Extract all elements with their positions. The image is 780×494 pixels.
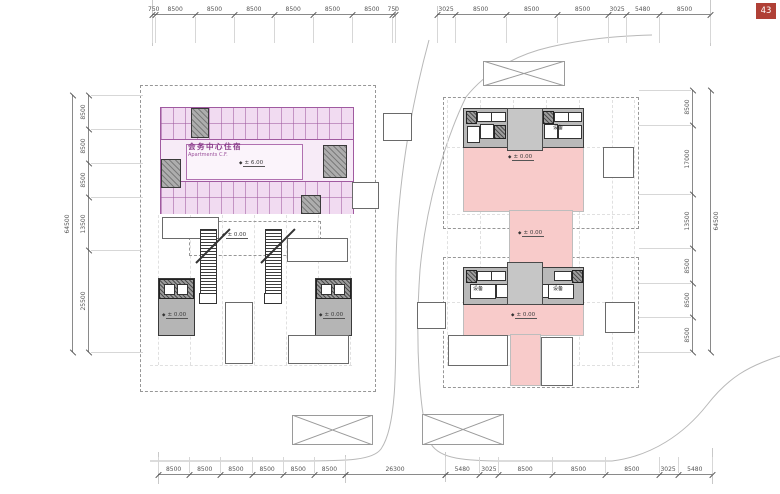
level-marker-icon: ◆ [162,313,165,318]
small-structure [383,113,412,141]
dim-chain-bottom-mid: 26300 [345,474,445,475]
canopy-marker [422,414,504,445]
podium-strip [510,334,541,386]
podium-area-lower [463,303,584,336]
level-marker-icon: ◆ [518,231,521,236]
ramp-landing [199,293,217,304]
stair-core [323,145,347,178]
small-structure [448,335,508,366]
stair-core [161,159,181,188]
dim-chain-top-left: 750850085008500850085008500750 [152,14,395,15]
tower-center-band [507,262,543,305]
level-marker-icon: ◆ [319,313,322,318]
dim-chain-left-inner: 8500850085001350025500 [88,95,89,352]
stair-core [301,195,321,214]
level-marker-icon: ◆ [511,313,514,318]
unit-room [480,124,494,139]
unit-room [568,112,582,122]
elevator-cab [177,284,188,295]
small-structure [225,302,253,364]
equipment-label: 设备 [553,287,563,292]
ramp-shaft [200,229,217,301]
canopy-marker [292,415,373,445]
level-annotation: ◆± 0.00 [222,232,248,239]
small-structure [287,238,348,262]
level-annotation: ◆± 0.00 [518,230,544,237]
dim-chain-bottom-left: 850085008500850085008500 [158,474,345,475]
service-core [158,278,195,336]
small-structure [352,182,379,209]
page-number-badge: 43 [756,3,776,19]
dim-chain-right-total: 64500 [710,90,711,352]
ramp-shaft [265,229,282,301]
small-structure [541,337,573,386]
equipment-label: 设备 [553,126,563,131]
unit-room [477,271,492,281]
dim-chain-top-right: 3025850085008500302554808500 [437,14,710,15]
stair-core [191,108,209,138]
small-structure [288,335,349,364]
small-structure [603,147,634,178]
level-annotation: ◆± 0.00 [162,312,188,319]
elevator-bank [466,111,477,124]
dim-chain-right-inner: 85001700013500850085008500 [692,90,693,352]
small-structure [605,302,635,333]
building-title-cn: 会务中心住宿 [188,141,242,152]
dim-chain-left-total: 64500 [72,95,73,352]
elevator-bank [466,270,477,283]
level-annotation: ◆± 0.00 [511,312,537,319]
tower-center-band [507,108,543,151]
ramp-landing [264,293,282,304]
site-plan-canvas: 750850085008500850085008500750 302585008… [0,0,780,494]
elevator-cab [164,284,175,295]
level-annotation: ◆± 6.00 [239,160,265,167]
equipment-label: 设备 [473,287,483,292]
level-annotation: ◆± 0.00 [508,154,534,161]
level-marker-icon: ◆ [508,155,511,160]
elevator-bank [494,125,506,139]
dim-chain-bottom-right: 5480302585008500850030255480 [445,474,712,475]
canopy-marker [483,61,565,86]
room-wing-south [161,181,353,214]
building-title-en: Apartments C.F. [188,152,228,158]
unit-room [477,112,492,122]
service-core [315,278,352,336]
unit-room [554,271,572,281]
road-curves [0,0,780,494]
elevator-cab [334,284,345,295]
elevator-bank [572,270,583,283]
level-annotation: ◆± 0.00 [319,312,345,319]
unit-room [491,112,506,122]
podium-connector [509,210,573,268]
unit-room [554,112,569,122]
unit-room [491,271,506,281]
room-wing-north [161,108,353,140]
level-marker-icon: ◆ [239,161,242,166]
unit-room [467,126,480,143]
small-structure [417,302,446,329]
elevator-cab [321,284,332,295]
elevator-bank [543,111,554,124]
level-marker-icon: ◆ [222,233,225,238]
